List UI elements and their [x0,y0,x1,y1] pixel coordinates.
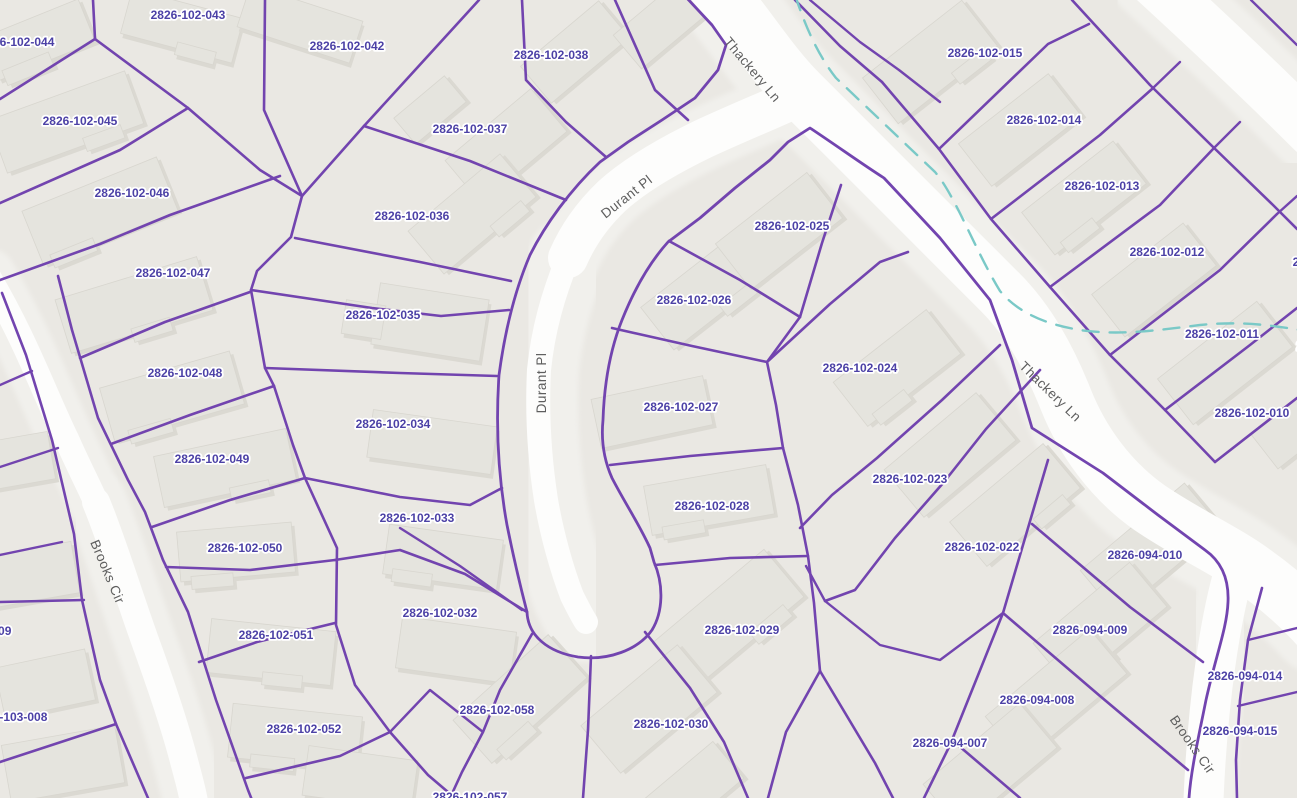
svg-text:2826-102-048: 2826-102-048 [148,366,223,380]
svg-text:2826-094-015: 2826-094-015 [1203,724,1278,738]
svg-text:2826-102-025: 2826-102-025 [755,219,830,233]
svg-text:2826-102-034: 2826-102-034 [356,417,431,431]
svg-text:2826-094-009: 2826-094-009 [1053,623,1128,637]
svg-text:2826-102-028: 2826-102-028 [675,499,750,513]
svg-text:2826-103-008: 2826-103-008 [0,710,48,724]
svg-text:2826-102-027: 2826-102-027 [644,400,719,414]
svg-text:2826-102-037: 2826-102-037 [433,122,508,136]
svg-text:2826-102-029: 2826-102-029 [705,623,780,637]
svg-text:2826-102-012: 2826-102-012 [1130,245,1205,259]
svg-text:2826-102-043: 2826-102-043 [151,8,226,22]
svg-text:2826-102-042: 2826-102-042 [310,39,385,53]
svg-text:2826-102-044: 2826-102-044 [0,35,55,49]
svg-text:2826-094-014: 2826-094-014 [1208,669,1283,683]
svg-text:2826-094-008: 2826-094-008 [1000,693,1075,707]
svg-text:2826-102-026: 2826-102-026 [657,293,732,307]
svg-text:2826-102-058: 2826-102-058 [460,703,535,717]
svg-text:2826-102-010: 2826-102-010 [1215,406,1290,420]
svg-text:2826-102-032: 2826-102-032 [403,606,478,620]
svg-text:2826-102-009: 2826-102-009 [0,624,12,638]
svg-text:2826-102-052: 2826-102-052 [267,722,342,736]
svg-text:2826-102-046: 2826-102-046 [95,186,170,200]
svg-text:2826-102-047: 2826-102-047 [136,266,211,280]
svg-text:2826-102-030: 2826-102-030 [634,717,709,731]
svg-text:2826-102-008: 2826-102-008 [1293,255,1297,269]
svg-text:2826-094-007: 2826-094-007 [913,736,988,750]
svg-text:2826-102-022: 2826-102-022 [945,540,1020,554]
svg-text:2826-094-010: 2826-094-010 [1108,548,1183,562]
svg-text:2826-102-023: 2826-102-023 [873,472,948,486]
svg-text:Durant Pl: Durant Pl [534,353,549,414]
svg-text:2826-102-050: 2826-102-050 [208,541,283,555]
svg-text:2826-102-035: 2826-102-035 [346,308,421,322]
svg-text:2826-102-049: 2826-102-049 [175,452,250,466]
svg-text:2826-102-057: 2826-102-057 [433,790,508,798]
svg-text:2826-102-014: 2826-102-014 [1007,113,1082,127]
svg-text:2826-102-051: 2826-102-051 [239,628,314,642]
svg-text:2826-102-013: 2826-102-013 [1065,179,1140,193]
svg-text:2826-102-011: 2826-102-011 [1185,327,1259,341]
svg-text:2826-102-033: 2826-102-033 [380,511,455,525]
svg-text:2826-102-036: 2826-102-036 [375,209,450,223]
svg-text:2826-102-045: 2826-102-045 [43,114,118,128]
svg-text:2826-102-038: 2826-102-038 [514,48,589,62]
svg-text:2826-102-015: 2826-102-015 [948,46,1023,60]
svg-text:2826-102-024: 2826-102-024 [823,361,898,375]
